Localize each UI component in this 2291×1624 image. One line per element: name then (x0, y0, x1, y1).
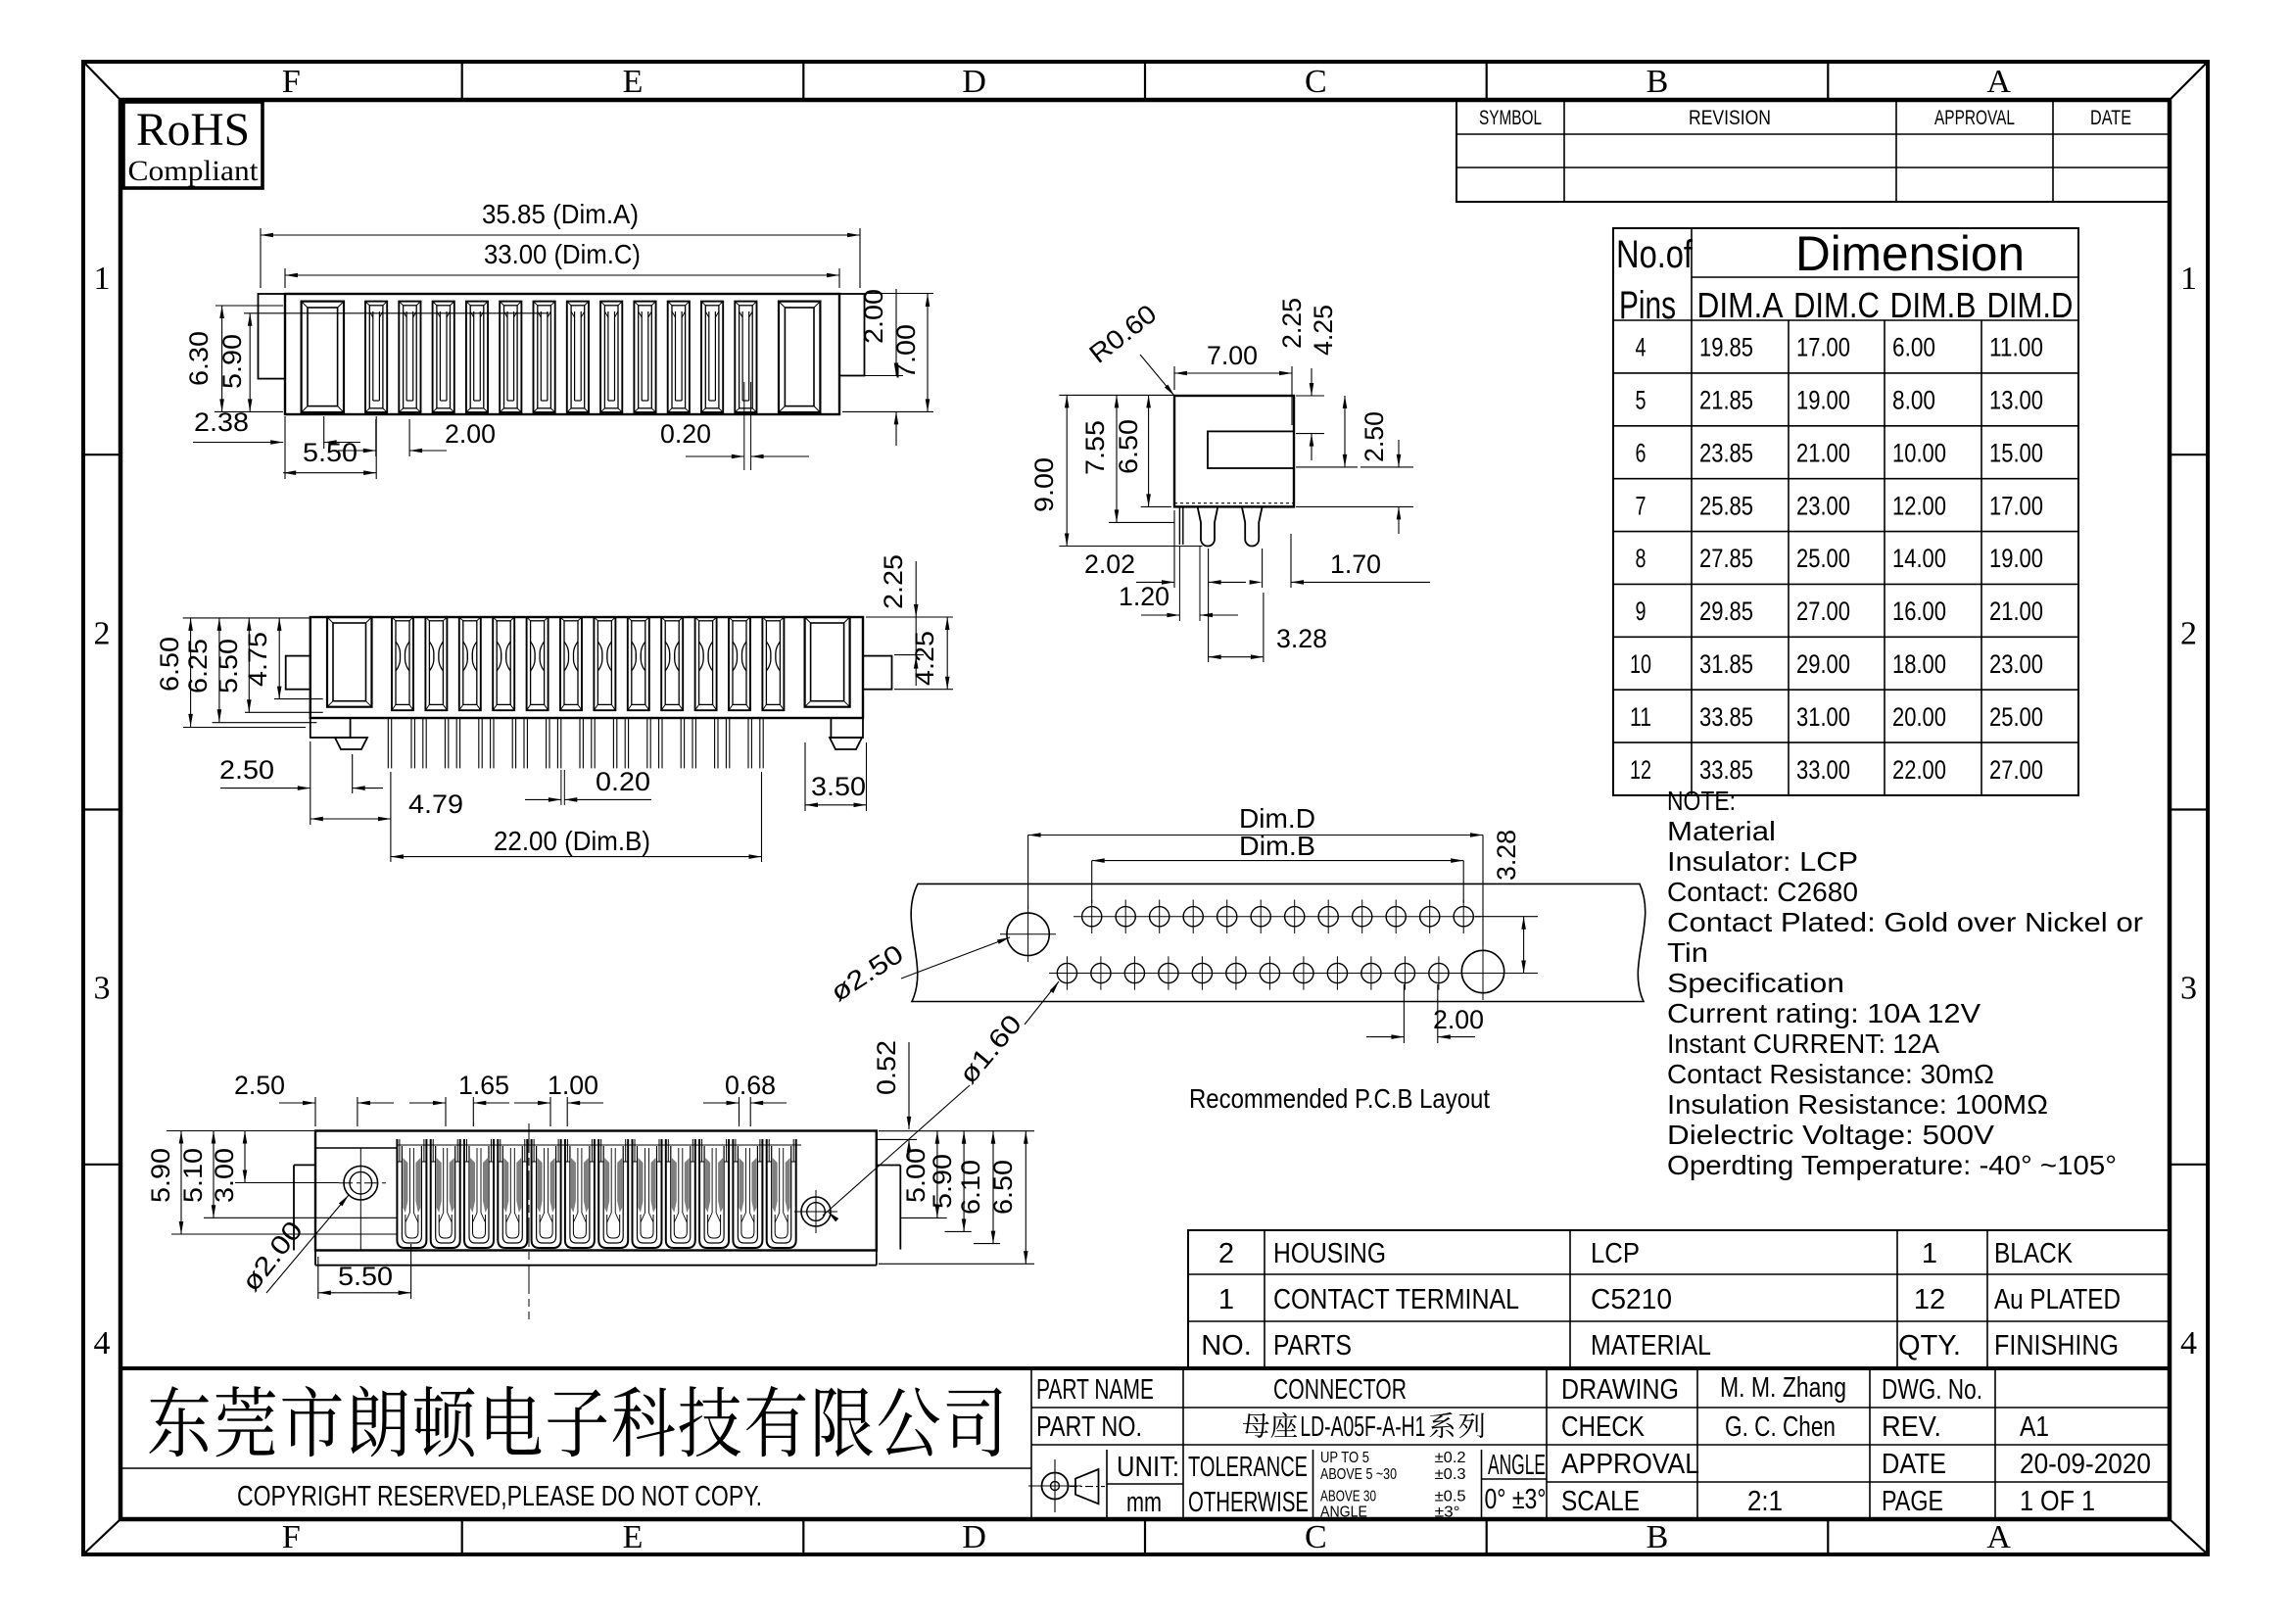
svg-text:12: 12 (1914, 1284, 1945, 1315)
svg-text:Insulation Resistance: 100MΩ: Insulation Resistance: 100MΩ (1667, 1089, 2048, 1120)
svg-text:12.00: 12.00 (1892, 491, 1946, 520)
svg-text:1.70: 1.70 (1330, 549, 1381, 579)
svg-text:1: 1 (1218, 1284, 1234, 1315)
svg-text:ANGLE: ANGLE (1320, 1505, 1367, 1521)
svg-text:DWG. No.: DWG. No. (1882, 1374, 1982, 1406)
svg-text:27.00: 27.00 (1989, 755, 2043, 785)
svg-text:Operdting Temperature: -40° ~1: Operdting Temperature: -40° ~105° (1667, 1150, 2117, 1180)
svg-text:APPROVAL: APPROVAL (1561, 1449, 1699, 1480)
svg-text:5.90: 5.90 (146, 1148, 175, 1203)
svg-text:CONNECTOR: CONNECTOR (1273, 1374, 1407, 1406)
svg-text:DIM.B: DIM.B (1890, 285, 1977, 325)
svg-text:NO.: NO. (1201, 1330, 1252, 1361)
svg-text:F: F (282, 64, 301, 100)
svg-text:A: A (1986, 64, 2011, 100)
svg-text:±0.2: ±0.2 (1435, 1450, 1466, 1466)
svg-text:4: 4 (1636, 333, 1647, 362)
svg-text:Contact: C2680: Contact: C2680 (1667, 877, 1858, 907)
svg-text:6.50: 6.50 (988, 1160, 1018, 1215)
svg-text:25.85: 25.85 (1699, 491, 1753, 520)
svg-text:7.00: 7.00 (1207, 341, 1258, 370)
svg-text:HOUSING: HOUSING (1273, 1238, 1386, 1269)
svg-text:22.00 (Dim.B): 22.00 (Dim.B) (494, 826, 650, 856)
svg-text:C: C (1305, 64, 1327, 100)
svg-text:10.00: 10.00 (1892, 438, 1946, 467)
svg-text:NOTE:: NOTE: (1667, 786, 1736, 816)
svg-text:3.28: 3.28 (1492, 830, 1521, 881)
svg-text:B: B (1647, 64, 1669, 100)
svg-text:13.00: 13.00 (1989, 386, 2043, 415)
svg-text:UNIT:: UNIT: (1117, 1452, 1179, 1483)
svg-text:DIM.D: DIM.D (1987, 285, 2074, 325)
svg-text:APPROVAL: APPROVAL (1934, 107, 2015, 129)
svg-text:DIM.A: DIM.A (1697, 285, 1784, 325)
svg-text:35.85 (Dim.A): 35.85 (Dim.A) (482, 199, 639, 229)
svg-text:6.00: 6.00 (1892, 333, 1935, 362)
svg-text:6: 6 (1636, 438, 1647, 467)
svg-text:21.00: 21.00 (1989, 597, 2043, 626)
svg-text:DATE: DATE (2090, 107, 2131, 129)
svg-text:3.50: 3.50 (811, 772, 866, 801)
svg-text:6.10: 6.10 (956, 1160, 985, 1215)
svg-text:3.00: 3.00 (210, 1148, 239, 1203)
svg-text:TOLERANCE: TOLERANCE (1188, 1452, 1308, 1483)
svg-text:1 OF 1: 1 OF 1 (2020, 1486, 2095, 1517)
svg-text:Dimension: Dimension (1795, 226, 2025, 281)
svg-text:7.00: 7.00 (891, 324, 921, 379)
svg-text:23.00: 23.00 (1989, 649, 2043, 679)
svg-text:A1: A1 (2020, 1411, 2049, 1443)
svg-text:5: 5 (1636, 386, 1647, 415)
svg-text:COPYRIGHT RESERVED,PLEASE DO N: COPYRIGHT RESERVED,PLEASE DO NOT COPY. (237, 1481, 762, 1512)
svg-text:G. C. Chen: G. C. Chen (1725, 1411, 1836, 1443)
svg-text:12: 12 (1630, 755, 1651, 785)
svg-text:19.00: 19.00 (1796, 386, 1850, 415)
svg-text:6.50: 6.50 (1114, 419, 1143, 474)
svg-text:Dielectric Voltage: 500V: Dielectric Voltage: 500V (1667, 1120, 1994, 1150)
svg-text:9: 9 (1636, 597, 1647, 626)
svg-text:2.25: 2.25 (879, 554, 908, 609)
svg-text:0.52: 0.52 (872, 1040, 901, 1095)
svg-text:11.00: 11.00 (1989, 333, 2043, 362)
svg-text:CHECK: CHECK (1561, 1411, 1646, 1443)
svg-text:0.68: 0.68 (725, 1071, 776, 1100)
svg-text:0.20: 0.20 (596, 767, 650, 796)
svg-text:31.00: 31.00 (1796, 702, 1850, 732)
svg-text:2.50: 2.50 (219, 755, 274, 785)
svg-text:19.85: 19.85 (1699, 333, 1753, 362)
svg-text:D: D (962, 1519, 986, 1555)
svg-text:Dim.B: Dim.B (1239, 831, 1315, 861)
svg-text:22.00: 22.00 (1892, 755, 1946, 785)
svg-text:5.50: 5.50 (338, 1262, 393, 1291)
svg-text:9.00: 9.00 (1029, 457, 1059, 512)
svg-text:ABOVE 5 ~30: ABOVE 5 ~30 (1320, 1466, 1397, 1483)
svg-text:17.00: 17.00 (1989, 491, 2043, 520)
svg-text:2: 2 (1218, 1238, 1234, 1269)
svg-text:2.25: 2.25 (1277, 298, 1307, 349)
svg-text:5.00: 5.00 (901, 1148, 931, 1203)
svg-text:17.00: 17.00 (1796, 333, 1850, 362)
svg-text:UP TO 5: UP TO 5 (1320, 1450, 1369, 1466)
svg-text:6.30: 6.30 (184, 331, 214, 386)
svg-text:QTY.: QTY. (1898, 1330, 1961, 1361)
svg-text:25.00: 25.00 (1796, 544, 1850, 573)
svg-text:DATE: DATE (1882, 1449, 1946, 1480)
svg-text:0° ±3°: 0° ±3° (1485, 1484, 1547, 1515)
svg-text:OTHERWISE: OTHERWISE (1188, 1487, 1309, 1518)
svg-text:Compliant: Compliant (128, 155, 260, 187)
svg-text:4.25: 4.25 (1309, 305, 1338, 356)
svg-text:Contact Resistance: 30mΩ: Contact Resistance: 30mΩ (1667, 1059, 1994, 1089)
svg-text:E: E (623, 1519, 644, 1555)
svg-text:DRAWING: DRAWING (1561, 1374, 1679, 1406)
svg-text:2: 2 (2180, 615, 2197, 651)
svg-text:3: 3 (2180, 971, 2197, 1007)
svg-text:PART NAME: PART NAME (1036, 1374, 1154, 1406)
svg-text:2: 2 (94, 615, 111, 651)
svg-text:27.85: 27.85 (1699, 544, 1753, 573)
svg-text:15.00: 15.00 (1989, 438, 2043, 467)
svg-text:Pins: Pins (1619, 284, 1676, 327)
svg-text:±3°: ±3° (1435, 1505, 1460, 1521)
svg-text:C: C (1305, 1519, 1327, 1555)
svg-text:PART NO.: PART NO. (1036, 1411, 1142, 1443)
svg-text:±0.3: ±0.3 (1435, 1466, 1466, 1483)
svg-text:4.25: 4.25 (910, 631, 939, 686)
svg-text:C5210: C5210 (1591, 1284, 1672, 1315)
svg-text:PAGE: PAGE (1882, 1486, 1943, 1517)
svg-text:1: 1 (94, 261, 111, 297)
svg-text:3.28: 3.28 (1276, 624, 1327, 653)
svg-text:CONTACT TERMINAL: CONTACT TERMINAL (1273, 1284, 1519, 1315)
svg-text:1.65: 1.65 (458, 1071, 509, 1100)
svg-text:7: 7 (1636, 491, 1647, 520)
svg-text:2.00: 2.00 (445, 419, 496, 449)
svg-text:4: 4 (94, 1325, 111, 1361)
svg-text:7.55: 7.55 (1080, 420, 1110, 475)
svg-text:D: D (962, 64, 986, 100)
svg-text:29.00: 29.00 (1796, 649, 1850, 679)
svg-text:SYMBOL: SYMBOL (1479, 107, 1542, 129)
svg-text:Insulator: LCP: Insulator: LCP (1667, 846, 1858, 877)
svg-text:BLACK: BLACK (1994, 1238, 2074, 1269)
svg-text:2:1: 2:1 (1747, 1486, 1783, 1517)
svg-text:1.20: 1.20 (1119, 582, 1169, 611)
svg-text:SCALE: SCALE (1561, 1486, 1640, 1517)
svg-text:11: 11 (1630, 702, 1651, 732)
svg-text:5.90: 5.90 (217, 334, 247, 389)
svg-text:33.00: 33.00 (1796, 755, 1850, 785)
svg-text:8: 8 (1636, 544, 1647, 573)
svg-text:0.20: 0.20 (660, 419, 711, 449)
svg-text:M. M. Zhang: M. M. Zhang (1720, 1372, 1846, 1404)
svg-text:14.00: 14.00 (1892, 544, 1946, 573)
svg-text:5.50: 5.50 (303, 438, 358, 467)
svg-text:2.50: 2.50 (234, 1071, 285, 1100)
svg-text:REVISION: REVISION (1689, 107, 1771, 129)
svg-text:F: F (282, 1519, 301, 1555)
svg-text:B: B (1647, 1519, 1669, 1555)
svg-text:1: 1 (1922, 1238, 1937, 1269)
svg-text:6.50: 6.50 (155, 637, 184, 692)
svg-text:Material: Material (1667, 816, 1776, 846)
svg-text:±0.5: ±0.5 (1435, 1489, 1466, 1505)
svg-text:ANGLE: ANGLE (1488, 1450, 1546, 1481)
svg-text:31.85: 31.85 (1699, 649, 1753, 679)
svg-text:2.00: 2.00 (1433, 1005, 1484, 1034)
svg-text:10: 10 (1630, 649, 1651, 679)
svg-text:33.00 (Dim.C): 33.00 (Dim.C) (484, 239, 641, 269)
svg-text:Tin: Tin (1667, 937, 1708, 968)
svg-text:Dim.D: Dim.D (1239, 803, 1315, 834)
svg-text:1.00: 1.00 (548, 1071, 598, 1100)
svg-text:2.00: 2.00 (859, 289, 888, 344)
svg-text:1: 1 (2180, 261, 2197, 297)
svg-text:mm: mm (1126, 1487, 1162, 1518)
svg-text:Recommended P.C.B Layout: Recommended P.C.B Layout (1189, 1083, 1490, 1114)
svg-text:20-09-2020: 20-09-2020 (2020, 1449, 2151, 1480)
svg-text:FINISHING: FINISHING (1994, 1330, 2119, 1361)
svg-text:27.00: 27.00 (1796, 597, 1850, 626)
svg-text:Current rating: 10A 12V: Current rating: 10A 12V (1667, 998, 1981, 1028)
svg-text:RoHS: RoHS (136, 104, 250, 156)
svg-text:A: A (1986, 1519, 2011, 1555)
svg-text:33.85: 33.85 (1699, 702, 1753, 732)
svg-text:33.85: 33.85 (1699, 755, 1753, 785)
svg-text:3: 3 (94, 971, 111, 1007)
svg-text:4: 4 (2180, 1325, 2197, 1361)
svg-text:Au PLATED: Au PLATED (1994, 1284, 2121, 1315)
svg-text:PARTS: PARTS (1273, 1330, 1352, 1361)
svg-text:5.50: 5.50 (214, 639, 243, 693)
svg-text:21.85: 21.85 (1699, 386, 1753, 415)
svg-text:Instant CURRENT: 12A: Instant CURRENT: 12A (1667, 1028, 1939, 1059)
svg-text:LCP: LCP (1591, 1238, 1640, 1269)
svg-text:LD-A05F-A-H1: LD-A05F-A-H1 (1300, 1411, 1425, 1443)
svg-text:REV.: REV. (1882, 1411, 1941, 1443)
svg-text:25.00: 25.00 (1989, 702, 2043, 732)
svg-text:5.10: 5.10 (178, 1148, 208, 1203)
svg-text:Specification: Specification (1667, 968, 1844, 998)
svg-text:2.50: 2.50 (1360, 411, 1389, 462)
svg-text:23.85: 23.85 (1699, 438, 1753, 467)
svg-text:ABOVE 30: ABOVE 30 (1320, 1489, 1376, 1505)
svg-text:5.90: 5.90 (928, 1154, 957, 1209)
svg-text:E: E (623, 64, 644, 100)
svg-text:4.79: 4.79 (408, 789, 463, 819)
svg-text:21.00: 21.00 (1796, 438, 1850, 467)
svg-text:23.00: 23.00 (1796, 491, 1850, 520)
svg-text:4.75: 4.75 (243, 632, 272, 687)
svg-text:MATERIAL: MATERIAL (1591, 1330, 1711, 1361)
svg-text:DIM.C: DIM.C (1793, 285, 1880, 325)
svg-text:19.00: 19.00 (1989, 544, 2043, 573)
svg-text:16.00: 16.00 (1892, 597, 1946, 626)
svg-text:No.of: No.of (1616, 233, 1694, 276)
svg-text:6.25: 6.25 (183, 639, 213, 693)
svg-text:18.00: 18.00 (1892, 649, 1946, 679)
svg-text:29.85: 29.85 (1699, 597, 1753, 626)
svg-text:Contact Plated: Gold over Nick: Contact Plated: Gold over Nickel or (1667, 907, 2143, 937)
svg-text:2.38: 2.38 (194, 407, 249, 437)
svg-text:8.00: 8.00 (1892, 386, 1935, 415)
svg-text:2.02: 2.02 (1084, 549, 1135, 579)
svg-text:20.00: 20.00 (1892, 702, 1946, 732)
